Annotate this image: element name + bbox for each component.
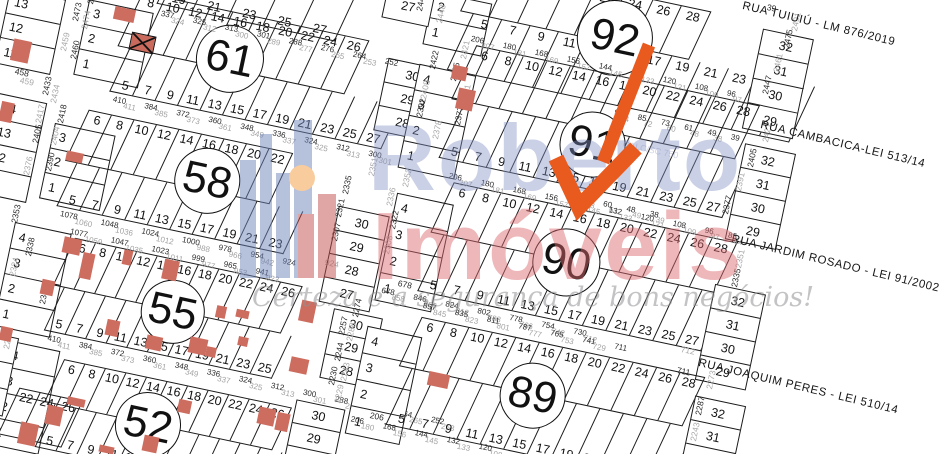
lot-number: 3 bbox=[364, 360, 374, 375]
street-number: 373 bbox=[120, 354, 135, 366]
lot-number: 13 bbox=[154, 211, 171, 228]
street-number: 325 bbox=[248, 381, 263, 393]
street-number: 411 bbox=[122, 101, 136, 112]
lot-number: 15 bbox=[176, 216, 193, 233]
map-ref-label: 2418 bbox=[55, 103, 69, 124]
lot-number: 21 bbox=[613, 317, 630, 334]
lot-number: 30 bbox=[750, 200, 767, 217]
lot-number: 13 bbox=[13, 0, 30, 12]
street-number: 253 bbox=[362, 56, 377, 68]
map-ref-label: 2353 bbox=[9, 203, 23, 224]
lot-number: 8 bbox=[146, 0, 156, 11]
street-number: 325 bbox=[314, 142, 329, 154]
lot-number: 6 bbox=[66, 362, 76, 377]
lot-number: 1 bbox=[47, 180, 57, 195]
lot-number: 29 bbox=[343, 339, 360, 356]
lot-number: 22 bbox=[610, 359, 627, 376]
lot-number: 16 bbox=[539, 344, 556, 361]
lot-number: 12 bbox=[492, 334, 509, 351]
building-footprint bbox=[237, 336, 249, 347]
lot-number: 11 bbox=[185, 92, 201, 108]
lot-number: 21 bbox=[205, 0, 222, 15]
lot-number: 23 bbox=[636, 322, 653, 339]
lot-number: 7 bbox=[90, 197, 100, 212]
lot-number: 15 bbox=[229, 101, 246, 118]
lot-number: 23 bbox=[319, 120, 336, 137]
lot-number: 17 bbox=[534, 441, 551, 454]
map-ref-label: 2351 bbox=[366, 156, 380, 177]
lot-number: 8 bbox=[87, 367, 97, 382]
lot-number: 8 bbox=[449, 325, 459, 340]
lot-number: 3 bbox=[92, 7, 102, 22]
lot-number: 23 bbox=[658, 189, 675, 206]
lot-number: 7 bbox=[142, 83, 152, 98]
street-number: 777 bbox=[528, 328, 543, 340]
lot-number: 13 bbox=[0, 125, 12, 142]
lot-number: 10 bbox=[501, 195, 518, 212]
lot-number: 13 bbox=[519, 297, 536, 314]
lot-number: 4 bbox=[370, 334, 380, 349]
building-footprint bbox=[274, 412, 290, 432]
lot-number: 21 bbox=[581, 451, 598, 454]
lot-number: 7 bbox=[452, 283, 462, 298]
lot-number: 23 bbox=[235, 355, 252, 372]
lot-number: 5 bbox=[479, 17, 489, 32]
street-number: 337 bbox=[216, 374, 231, 386]
lot-number: 16 bbox=[165, 383, 182, 400]
lot-number: 12 bbox=[156, 127, 173, 144]
lot-number: 1 bbox=[406, 148, 416, 163]
lot-number: 19 bbox=[589, 312, 606, 329]
map-ref-label: 2352 bbox=[400, 167, 414, 188]
map-ref-label: 2335 bbox=[729, 267, 743, 288]
lot-number: 19 bbox=[558, 446, 575, 454]
lot-number: 19 bbox=[674, 58, 691, 75]
street-number: 145 bbox=[424, 435, 439, 447]
lot-number: 14 bbox=[178, 131, 195, 148]
street-number: 729 bbox=[592, 342, 607, 354]
lot-number: 6 bbox=[92, 113, 102, 128]
lot-cell: 27 bbox=[383, 0, 434, 26]
lot-number: 9 bbox=[165, 88, 175, 103]
lot-number: 2 bbox=[411, 122, 421, 137]
lot-number: 27 bbox=[312, 21, 329, 38]
street-number: 97 bbox=[710, 231, 721, 242]
lot-number: 32 bbox=[710, 405, 727, 422]
lot-number: 8 bbox=[481, 191, 491, 206]
lot-number: 18 bbox=[617, 78, 634, 95]
lot-number: 26 bbox=[657, 369, 674, 386]
block-number: 89 bbox=[503, 366, 561, 425]
lot-number: 5 bbox=[67, 193, 77, 208]
lot-number: 29 bbox=[305, 430, 322, 447]
lot-number: 9 bbox=[475, 288, 485, 303]
lot-number: 25 bbox=[681, 194, 698, 211]
lot-number: 23 bbox=[267, 235, 284, 252]
lot-number: 28 bbox=[344, 262, 361, 279]
lot-number: 2 bbox=[7, 281, 17, 296]
lot-number: 28 bbox=[684, 8, 701, 25]
lot-number: 32 bbox=[760, 153, 777, 170]
lot-number: 20 bbox=[570, 0, 587, 1]
map-ref-label: 2351 bbox=[733, 248, 747, 269]
lot-number: 1 bbox=[81, 56, 91, 71]
lot-number: 17 bbox=[252, 106, 269, 123]
lot-number: 24 bbox=[688, 93, 705, 110]
lot-number: 11 bbox=[132, 206, 148, 222]
lot-number: 14 bbox=[516, 339, 533, 356]
lot-number: 11 bbox=[0, 174, 1, 190]
lot-number: 15 bbox=[542, 302, 559, 319]
lot-number: 9 bbox=[112, 202, 122, 217]
lot-number: 1 bbox=[1, 307, 11, 322]
building-footprint bbox=[177, 399, 192, 414]
lot-number: 12 bbox=[0, 149, 7, 166]
street-number: 361 bbox=[152, 360, 167, 372]
lot-number: 12 bbox=[124, 375, 141, 392]
lot-number: 30 bbox=[310, 408, 327, 425]
lot-number: 18 bbox=[595, 215, 612, 232]
lot-number: 29 bbox=[349, 239, 366, 256]
lot-number: 9 bbox=[95, 325, 105, 340]
street-number: 313 bbox=[346, 149, 361, 161]
lot-number: 10 bbox=[469, 330, 486, 347]
lot-number: 22 bbox=[269, 151, 286, 168]
lot-number: 24 bbox=[665, 230, 682, 247]
lot-number: 10 bbox=[133, 122, 150, 139]
building-footprint bbox=[145, 334, 164, 351]
lot-number: 25 bbox=[276, 13, 293, 30]
lot-number: 13 bbox=[207, 96, 224, 113]
lot-number: 7 bbox=[473, 149, 483, 164]
street-number: 349 bbox=[250, 128, 265, 140]
lot-number: 21 bbox=[703, 64, 720, 81]
cadastral-map: Roberto Imóveis Certeza e a segurança de… bbox=[0, 0, 946, 454]
lot-number: 19 bbox=[274, 111, 291, 128]
street-number: 801 bbox=[496, 321, 511, 333]
street-number: 108 bbox=[488, 448, 503, 454]
street-number: 385 bbox=[154, 108, 169, 120]
building-footprint bbox=[62, 236, 83, 255]
lot-number: 21 bbox=[244, 230, 261, 247]
lot-number: 10 bbox=[104, 370, 121, 387]
lot-number: 22 bbox=[18, 390, 35, 407]
building-footprint bbox=[289, 356, 310, 374]
lot-number: 5 bbox=[428, 278, 438, 293]
street-number: 361 bbox=[218, 122, 233, 134]
building-footprint bbox=[451, 65, 469, 82]
lot-number: 17 bbox=[199, 221, 216, 238]
street-number: 373 bbox=[186, 115, 201, 127]
lot-number: 18 bbox=[563, 349, 580, 366]
street-number: 753 bbox=[560, 335, 575, 347]
lot-number: 31 bbox=[755, 176, 772, 193]
lot-number: 6 bbox=[425, 320, 435, 335]
lot-number: 5 bbox=[120, 78, 130, 93]
block-number: 91 bbox=[563, 115, 621, 174]
map-ref-label: 2335 bbox=[340, 174, 354, 195]
lot-number: 19 bbox=[170, 0, 187, 7]
block-number: 92 bbox=[586, 8, 644, 67]
building-footprint bbox=[298, 300, 317, 324]
lot-number: 1 bbox=[431, 25, 441, 40]
map-ref-label: 459 bbox=[19, 75, 35, 88]
lot-number: 13 bbox=[540, 164, 557, 181]
lot-number: 27 bbox=[365, 130, 382, 147]
lot-number: 28 bbox=[713, 240, 730, 257]
street-number: 301 bbox=[378, 156, 393, 168]
block-number: 58 bbox=[178, 151, 236, 210]
lot-number: 24 bbox=[633, 364, 650, 381]
street-number: 337 bbox=[282, 135, 297, 147]
lot-number: 30 bbox=[720, 340, 737, 357]
street-number: 845 bbox=[432, 308, 447, 320]
lot-number: 11 bbox=[517, 159, 533, 175]
street-number: 385 bbox=[88, 347, 103, 359]
lot-number: 25 bbox=[342, 125, 359, 142]
lot-number: 21 bbox=[634, 184, 651, 201]
lot-number: 11 bbox=[496, 292, 512, 308]
street-number: 988 bbox=[196, 243, 211, 255]
street-number: 924 bbox=[282, 256, 297, 268]
lot-number: 5 bbox=[450, 144, 460, 159]
building-footprint bbox=[205, 346, 217, 358]
lot-number: 9 bbox=[86, 442, 96, 454]
building-footprint bbox=[256, 406, 276, 426]
lot-number: 20 bbox=[217, 271, 234, 288]
lot-number: 8 bbox=[97, 245, 107, 260]
street-number: 313 bbox=[280, 388, 295, 400]
lot-number: 12 bbox=[135, 253, 152, 270]
side-lot-column: 131211 bbox=[0, 0, 66, 75]
lot-number: 8 bbox=[114, 118, 124, 133]
block-number: 55 bbox=[144, 282, 202, 341]
map-ref-label: 712 bbox=[680, 344, 696, 357]
lot-number: 7 bbox=[74, 321, 84, 336]
lot-number: 26 bbox=[689, 235, 706, 252]
lot-number: 23 bbox=[241, 6, 258, 23]
block-number: 90 bbox=[537, 233, 595, 292]
lot-number: 26 bbox=[655, 2, 672, 19]
lot-number: 31 bbox=[725, 317, 742, 334]
lot-number: 12 bbox=[8, 20, 25, 37]
lot-number: 2 bbox=[359, 387, 369, 402]
lot-number: 17 bbox=[566, 307, 583, 324]
lot-number: 30 bbox=[354, 215, 371, 232]
lot-number: 5 bbox=[54, 317, 64, 332]
lot-number: 26 bbox=[711, 98, 728, 115]
lot-number: 11 bbox=[561, 34, 577, 50]
street-name-label: RUA JARDIM ROSADO - LEI 91/2002 bbox=[730, 233, 940, 295]
lot-number: 26 bbox=[279, 284, 296, 301]
lot-number: 28 bbox=[735, 103, 752, 120]
street-number: 966 bbox=[228, 249, 243, 261]
street-number: 133 bbox=[456, 442, 471, 454]
lot-number: 2 bbox=[87, 31, 97, 46]
lot-number: 7 bbox=[507, 23, 517, 38]
lot-number: 20 bbox=[586, 354, 603, 371]
lot-number: 25 bbox=[256, 360, 273, 377]
street-number: 711 bbox=[614, 342, 628, 353]
end-lot-column: 27 bbox=[381, 0, 435, 27]
lot-number: 21 bbox=[297, 116, 314, 133]
lot-number: 7 bbox=[65, 438, 75, 453]
street-number: 97 bbox=[732, 94, 743, 105]
street-number: 823 bbox=[464, 315, 479, 327]
block-number: 61 bbox=[201, 29, 259, 88]
lot-number: 32 bbox=[730, 293, 747, 310]
street-number: 942 bbox=[260, 256, 275, 268]
lot-number: 9 bbox=[536, 29, 546, 44]
lot-number: 4 bbox=[400, 201, 410, 216]
lot-number: 20 bbox=[246, 146, 263, 163]
lot-number: 23 bbox=[731, 70, 748, 87]
lot-number: 25 bbox=[660, 327, 677, 344]
lot-number: 19 bbox=[221, 225, 238, 242]
lot-number: 31 bbox=[705, 428, 722, 445]
lot-number: 22 bbox=[227, 396, 244, 413]
lot-number: 21 bbox=[215, 351, 232, 368]
lot-number: 10 bbox=[523, 58, 540, 75]
street-number: 349 bbox=[184, 367, 199, 379]
lot-number: 2 bbox=[388, 254, 398, 269]
lot-number: 20 bbox=[207, 392, 224, 409]
lot-number: 15 bbox=[511, 436, 528, 453]
lot-number: 19 bbox=[611, 179, 628, 196]
lot-number: 9 bbox=[497, 154, 507, 169]
